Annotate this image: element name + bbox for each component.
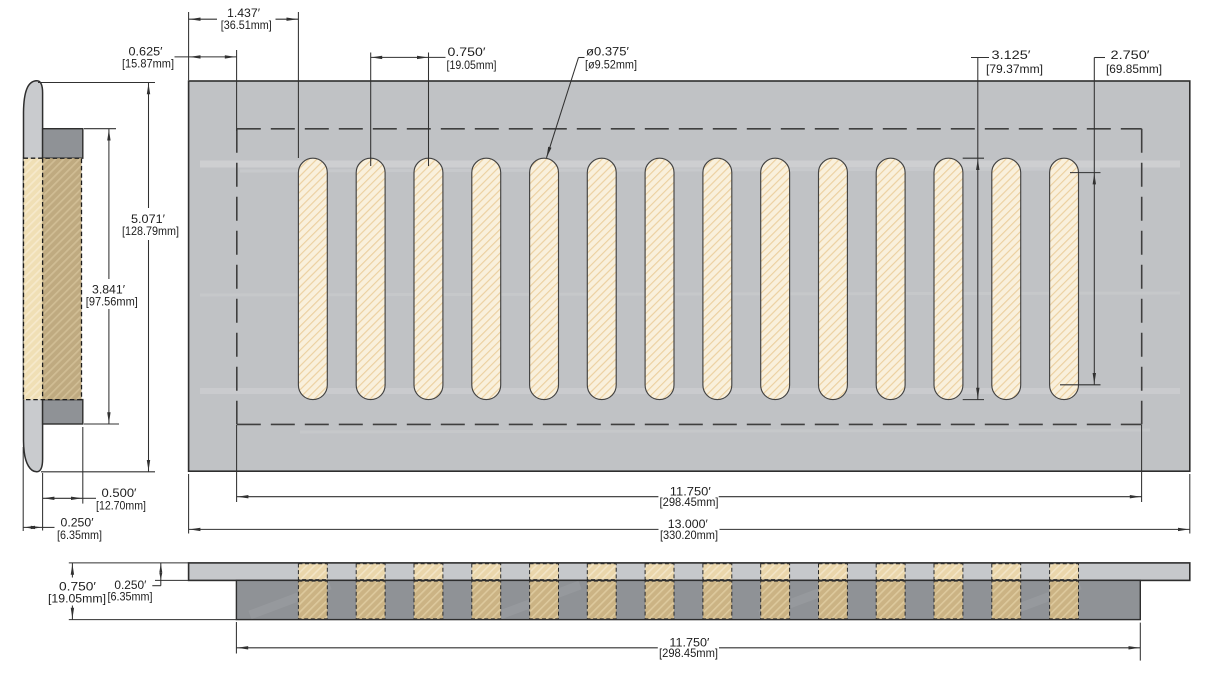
svg-text:[12.70mm]: [12.70mm] (96, 499, 146, 513)
svg-text:[298.45mm]: [298.45mm] (659, 646, 718, 660)
svg-text:[19.05mm]: [19.05mm] (48, 591, 106, 605)
svg-text:[15.87mm]: [15.87mm] (122, 57, 174, 71)
svg-text:[97.56mm]: [97.56mm] (86, 295, 138, 309)
svg-text:[79.37mm]: [79.37mm] (986, 62, 1043, 76)
svg-text:[19.05mm]: [19.05mm] (447, 58, 497, 72)
svg-text:3.125′: 3.125′ (992, 48, 1031, 62)
svg-text:[330.20mm]: [330.20mm] (660, 528, 718, 542)
svg-text:[69.85mm]: [69.85mm] (1106, 62, 1162, 76)
svg-text:[128.79mm]: [128.79mm] (122, 224, 179, 238)
svg-text:[6.35mm]: [6.35mm] (57, 528, 102, 542)
svg-text:[298.45mm]: [298.45mm] (660, 495, 719, 509)
svg-text:[36.51mm]: [36.51mm] (221, 18, 272, 32)
svg-text:2.750′: 2.750′ (1111, 48, 1150, 62)
svg-text:[ø9.52mm]: [ø9.52mm] (585, 57, 637, 71)
svg-text:[6.35mm]: [6.35mm] (108, 590, 153, 604)
